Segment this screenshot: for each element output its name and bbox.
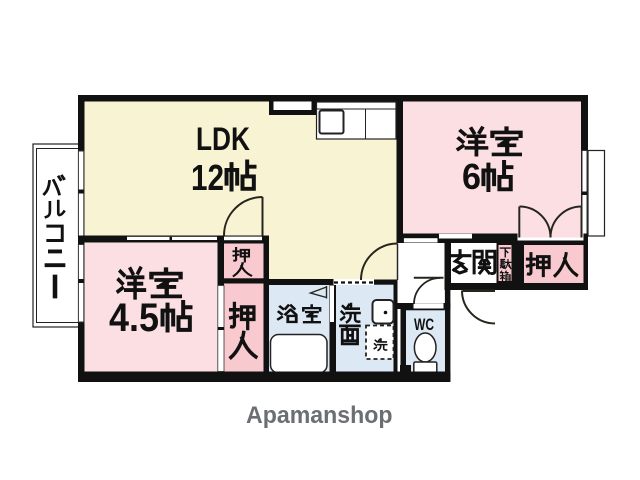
svg-text:12: 12 <box>191 157 224 198</box>
svg-text:WC: WC <box>414 315 434 334</box>
svg-text:4.5: 4.5 <box>109 296 159 340</box>
svg-text:Apamanshop: Apamanshop <box>246 402 393 429</box>
svg-text:LDK: LDK <box>196 121 250 157</box>
svg-text:6: 6 <box>462 156 481 197</box>
